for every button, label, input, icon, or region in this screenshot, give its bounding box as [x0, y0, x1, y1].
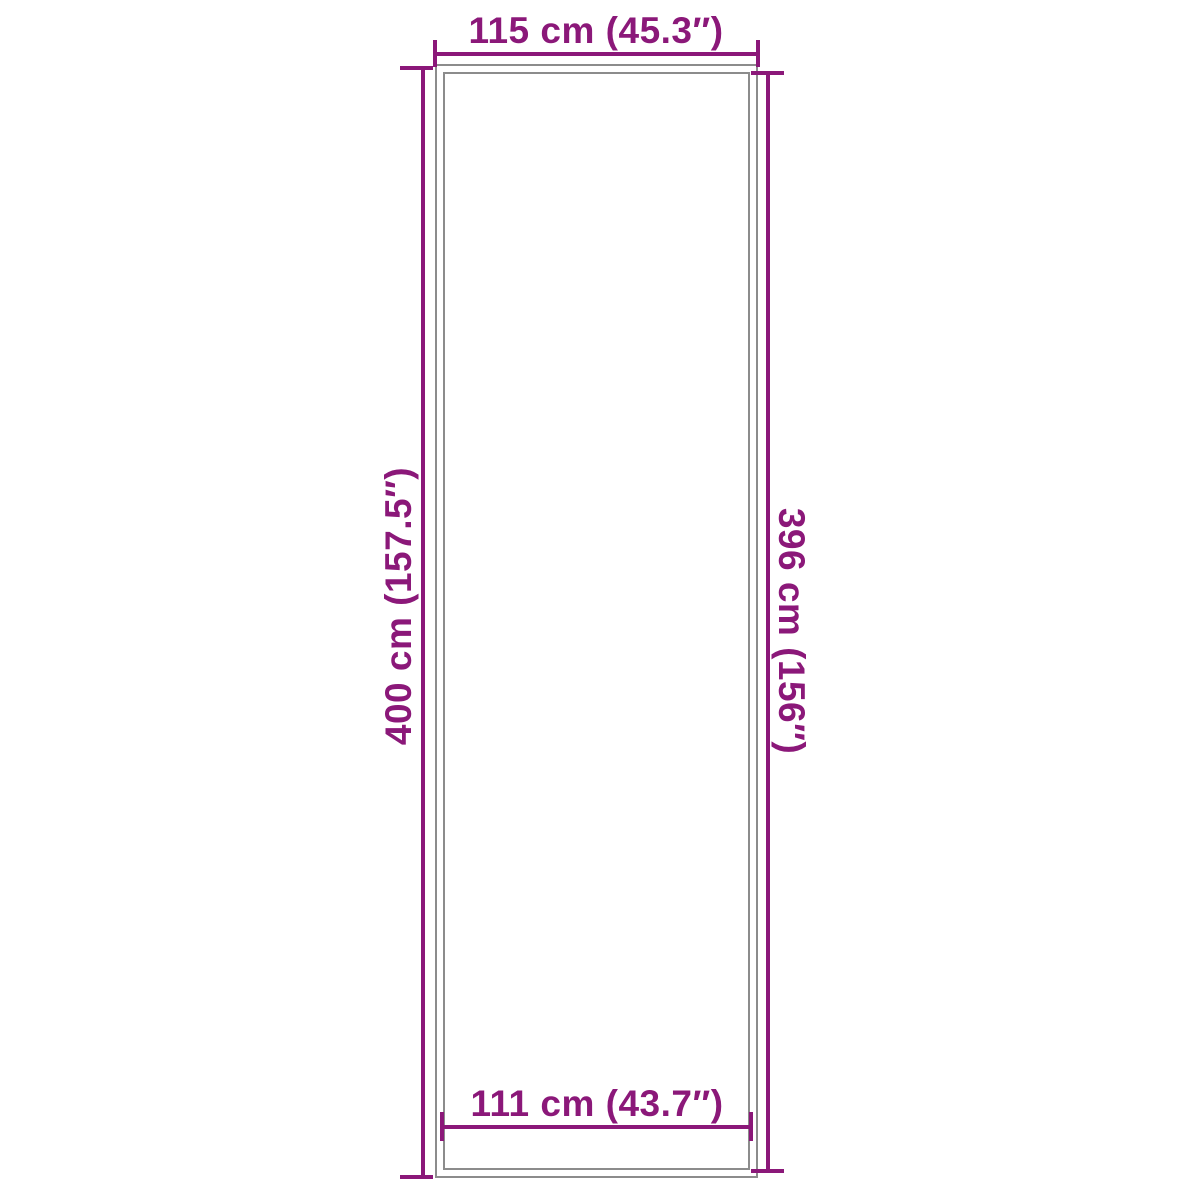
right-height-bottom-cap: [751, 1169, 784, 1173]
right-height-label: 396 cm (156″): [770, 508, 812, 754]
top-width-dimension-line: [434, 52, 759, 56]
left-height-bottom-cap: [400, 1175, 433, 1179]
left-height-dimension-line: [421, 66, 425, 1179]
left-height-top-cap: [400, 66, 433, 70]
right-height-top-cap: [751, 71, 784, 75]
top-width-left-tick: [433, 40, 437, 67]
bottom-inner-width-right-tick: [749, 1112, 753, 1141]
bottom-inner-width-label: 111 cm (43.7″): [470, 1083, 723, 1125]
product-outline-outer: [435, 64, 758, 1178]
bottom-inner-width-left-tick: [440, 1112, 444, 1141]
top-width-right-tick: [756, 40, 760, 67]
product-outline-inner: [443, 72, 750, 1170]
left-height-label: 400 cm (157.5″): [378, 467, 420, 745]
right-height-dimension-line: [766, 71, 770, 1173]
dimension-diagram: 115 cm (45.3″) 400 cm (157.5″) 396 cm (1…: [0, 0, 1200, 1200]
top-width-label: 115 cm (45.3″): [468, 10, 723, 52]
bottom-inner-width-dimension-line: [441, 1125, 752, 1129]
